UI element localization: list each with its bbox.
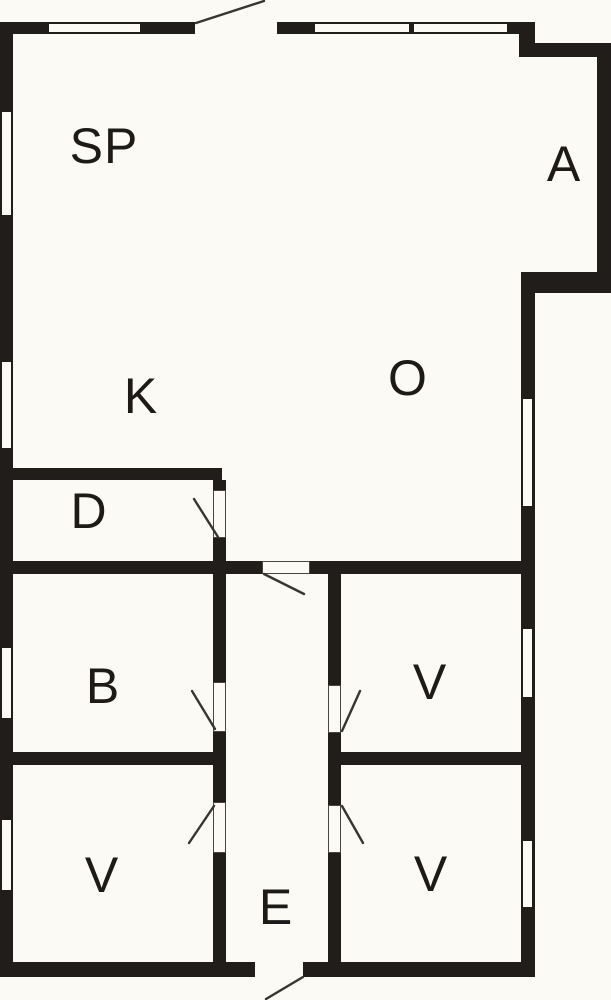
window-opening <box>414 24 507 32</box>
door-opening-v-bottom-left <box>213 802 226 853</box>
window-opening <box>523 841 532 907</box>
wall-corridor-right <box>328 574 341 963</box>
door-opening-hall-top <box>262 561 310 574</box>
wall-separator-right <box>341 752 521 765</box>
room-label-o: O <box>388 353 428 403</box>
wall-d-room-top <box>0 468 222 480</box>
door-swing-line <box>264 574 304 594</box>
window-opening <box>2 112 11 215</box>
room-label-b: B <box>86 661 120 711</box>
door-swing-line <box>266 977 303 999</box>
door-opening-entrance-top <box>195 22 277 34</box>
wall-mid-right <box>310 561 535 574</box>
door-swing-line <box>342 691 360 731</box>
window-opening <box>315 24 409 32</box>
room-label-a: A <box>547 139 581 189</box>
door-swing-line <box>196 1 264 23</box>
wall-mid-left <box>0 561 262 574</box>
wall-separator-left <box>13 752 226 765</box>
window-opening <box>2 648 11 718</box>
room-label-v-top-right: V <box>413 657 447 707</box>
room-label-v-bottom-right: V <box>414 849 448 899</box>
floor-plan: SP A K O D B V V V E <box>0 0 611 1000</box>
room-label-d: D <box>70 486 107 536</box>
window-opening <box>523 629 532 697</box>
door-opening-v-top-right <box>328 685 341 733</box>
room-label-k: K <box>124 371 158 421</box>
window-opening <box>49 24 140 32</box>
door-swing-line <box>342 806 363 843</box>
wall-bay-right <box>597 43 611 293</box>
wall-bay-bottom <box>521 272 611 293</box>
room-label-v-bottom-left: V <box>85 850 119 900</box>
door-swing-line <box>192 691 215 729</box>
door-opening-b-room <box>213 682 226 732</box>
room-label-e: E <box>259 882 293 932</box>
door-swing-line <box>189 806 214 843</box>
window-opening <box>523 399 532 506</box>
door-opening-entrance-bottom <box>255 962 303 977</box>
door-opening-d-room <box>213 490 226 538</box>
room-label-sp: SP <box>70 121 139 171</box>
window-opening <box>2 820 11 890</box>
door-opening-v-bottom-right <box>328 805 341 853</box>
window-opening <box>2 362 11 448</box>
wall-exterior-right-upper-stub <box>519 22 535 57</box>
